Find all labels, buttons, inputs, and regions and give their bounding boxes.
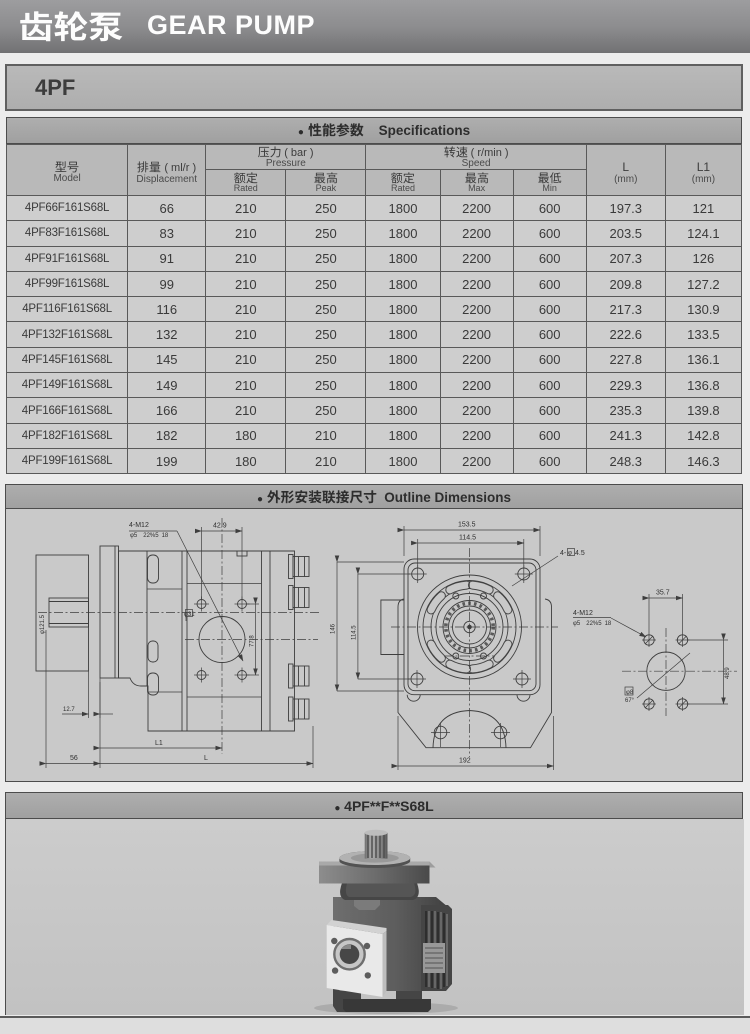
svg-text:56: 56 (70, 755, 78, 762)
svg-text:35.7: 35.7 (656, 590, 670, 597)
svg-text:77.8: 77.8 (250, 635, 256, 647)
svg-text:42.9: 42.9 (213, 523, 227, 530)
svg-text:L: L (204, 755, 208, 762)
svg-text:4-: 4- (560, 550, 567, 557)
svg-text:φ: φ (568, 551, 572, 557)
svg-text:114.5: 114.5 (459, 535, 476, 542)
svg-text:φ5 22%5 18: φ5 22%5 18 (130, 533, 169, 539)
svg-text:L1: L1 (155, 740, 163, 747)
svg-text:4.5: 4.5 (575, 550, 585, 557)
svg-text:48.9: 48.9 (725, 667, 731, 679)
svg-text:146: 146 (331, 623, 337, 634)
svg-text:192: 192 (459, 758, 471, 765)
svg-text:4-M12: 4-M12 (573, 610, 593, 617)
svg-text:67°: 67° (625, 698, 635, 704)
svg-text:4-M12: 4-M12 (129, 522, 149, 529)
svg-text:φ8: φ8 (626, 690, 634, 696)
svg-text:12.7: 12.7 (63, 707, 75, 713)
svg-text:114.5: 114.5 (351, 625, 357, 640)
svg-text:φ5 22%5 18: φ5 22%5 18 (573, 621, 612, 627)
svg-text:φ121.5: φ121.5 (40, 614, 46, 634)
svg-text:153.5: 153.5 (458, 522, 476, 529)
